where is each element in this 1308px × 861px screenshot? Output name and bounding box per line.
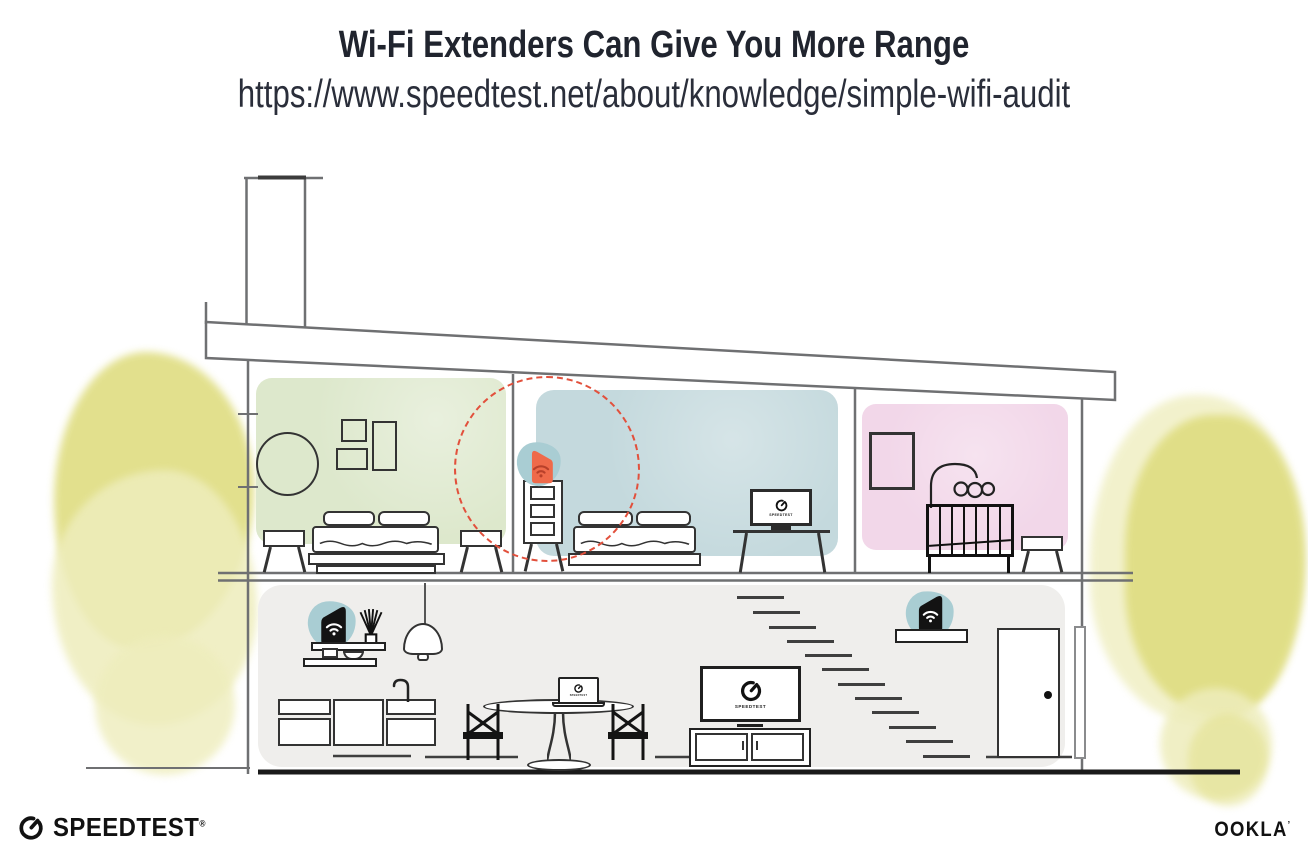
furniture-leg — [1055, 551, 1063, 573]
speedtest-wordmark: SPEEDTEST® — [53, 812, 206, 843]
pillow — [378, 511, 430, 526]
pillow — [323, 511, 375, 526]
bed-base — [316, 565, 436, 574]
laptop-base — [552, 702, 605, 707]
gauge-icon — [16, 813, 46, 843]
dresser-body — [523, 480, 563, 544]
stair-step — [889, 726, 936, 729]
pillow — [578, 511, 633, 526]
stair-step — [737, 596, 784, 599]
lamp-cord — [424, 583, 426, 625]
speedtest-logo: SPEEDTEST® — [16, 812, 219, 843]
dining-chair — [463, 704, 503, 760]
crib-bar — [951, 507, 954, 554]
wifi-icon — [530, 458, 552, 478]
crib-frame — [926, 504, 1014, 557]
furniture-leg — [1022, 551, 1030, 573]
crib-leg — [1007, 557, 1010, 573]
stair-step — [805, 654, 852, 657]
furniture-leg — [524, 544, 533, 572]
picture-frame — [336, 448, 368, 470]
drawer — [530, 504, 555, 518]
stair-step — [769, 626, 816, 629]
nightstand-top — [263, 530, 305, 547]
gauge-icon — [774, 498, 789, 513]
header: Wi-Fi Extenders Can Give You More Range … — [0, 0, 1308, 117]
round-mirror — [256, 432, 319, 496]
trademark-mark: ’ — [1288, 820, 1290, 831]
kitchen-drawer — [278, 699, 331, 715]
stair-step — [872, 711, 919, 714]
dining-chair — [608, 704, 648, 760]
bedroom-tv: SPEEDTEST — [750, 489, 812, 526]
door-knob — [1044, 691, 1052, 699]
infographic-canvas: Wi-Fi Extenders Can Give You More Range … — [0, 0, 1308, 861]
laptop-screen: SPEEDTEST — [558, 677, 599, 704]
furniture-leg — [494, 547, 503, 573]
stair-step — [923, 755, 970, 758]
faucet — [390, 677, 416, 702]
kitchen-drawer — [386, 718, 436, 746]
crib-mobile — [925, 456, 997, 508]
drawer — [530, 486, 555, 500]
pillow — [636, 511, 691, 526]
stair-step — [753, 611, 800, 614]
stair-step — [855, 697, 902, 700]
blanket-wave — [579, 539, 691, 548]
laptop-screen-label: SPEEDTEST — [570, 695, 588, 698]
picture-frame — [341, 419, 367, 442]
furniture-leg — [263, 547, 272, 573]
ookla-logo: OOKLA’ — [1214, 818, 1290, 842]
stair-step — [787, 640, 834, 643]
furniture-leg — [460, 547, 469, 573]
kitchen-door — [333, 699, 384, 746]
shelf-cup — [322, 648, 338, 658]
crib-bar — [963, 507, 966, 554]
double-bed — [568, 505, 704, 570]
table-pedestal — [547, 712, 571, 762]
stair-step — [838, 683, 885, 686]
picture-frame — [372, 421, 397, 471]
bed-platform — [568, 553, 701, 566]
plant — [358, 608, 384, 646]
kitchen-drawer — [278, 718, 331, 746]
double-bed — [308, 505, 448, 575]
furniture-leg — [297, 547, 306, 573]
page-title: Wi-Fi Extenders Can Give You More Range — [118, 24, 1191, 67]
stair-step — [822, 668, 869, 671]
downspout — [1074, 626, 1086, 759]
gauge-icon — [573, 683, 584, 694]
crib-bar — [987, 507, 990, 554]
source-url: https://www.speedtest.net/about/knowledg… — [131, 73, 1177, 117]
wifi-icon — [920, 604, 941, 623]
table-base — [527, 759, 591, 771]
registered-mark: ® — [199, 818, 206, 828]
picture-frame — [869, 432, 915, 490]
bed-platform — [308, 553, 445, 565]
drawer — [530, 522, 555, 536]
mattress — [312, 526, 439, 553]
wall-shelf — [895, 629, 968, 643]
stool-top — [1021, 536, 1063, 551]
foliage-blob — [95, 635, 235, 775]
blanket-wave — [318, 539, 434, 548]
crib-bar — [975, 507, 978, 554]
nightstand-top — [460, 530, 502, 547]
crib-leg — [928, 557, 931, 573]
speedtest-text: SPEEDTEST — [53, 812, 199, 842]
wall-shelf — [303, 658, 377, 667]
crib-bar — [939, 507, 942, 554]
foliage-blob — [1188, 714, 1268, 806]
stair-step — [906, 740, 953, 743]
tv-screen-label: SPEEDTEST — [769, 514, 793, 518]
foliage-blob — [1125, 415, 1305, 715]
wifi-icon — [323, 616, 345, 636]
entry-door — [997, 628, 1060, 758]
crib-bar — [999, 507, 1002, 554]
lamp-bulb — [417, 653, 429, 661]
ookla-text: OOKLA — [1214, 818, 1287, 841]
mattress — [573, 526, 696, 553]
